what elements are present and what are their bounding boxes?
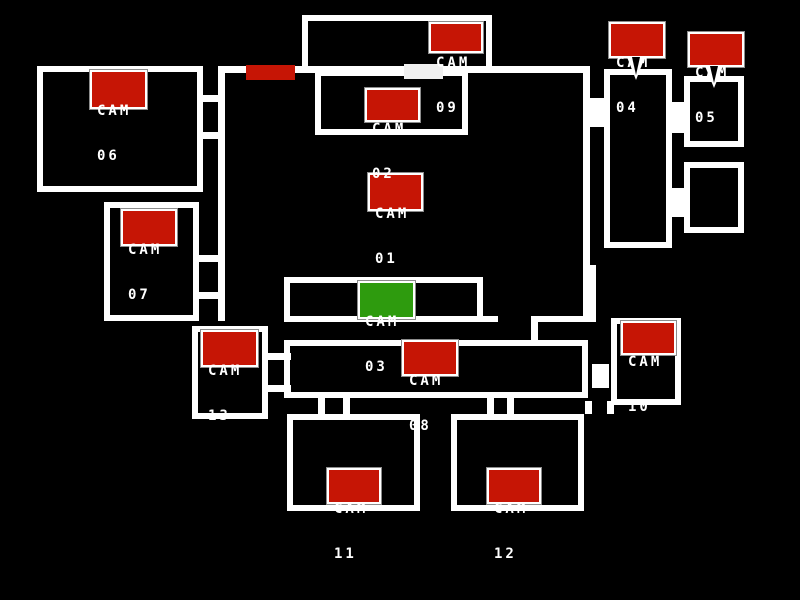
post-right-doorway-a <box>585 401 592 414</box>
cam-04-pointer-icon <box>626 57 646 82</box>
post-cam08-cam12-b <box>507 398 514 415</box>
cam-12-button[interactable]: CAM 12 <box>487 468 541 504</box>
cam-09-button[interactable]: CAM 09 <box>429 22 483 53</box>
post-cam08-cam12-a <box>487 398 494 415</box>
cam-08-label: CAM <box>409 374 456 389</box>
cam-04-number: 04 <box>616 101 663 116</box>
cam-13-button[interactable]: CAM 13 <box>201 330 258 367</box>
bridge-cam06-central-b <box>203 132 225 139</box>
cam-12-label: CAM <box>494 502 539 517</box>
cam-07-label: CAM <box>128 243 175 258</box>
cam-10-label: CAM <box>628 355 674 370</box>
cam-08-button[interactable]: CAM 08 <box>402 340 458 376</box>
cam-11-number: 11 <box>334 547 379 562</box>
connector-corridor-lower <box>672 188 685 217</box>
cam-07-number: 07 <box>128 288 175 303</box>
room-right-lower <box>684 162 744 233</box>
connector-cam08-cam10 <box>592 364 609 388</box>
cam-10-number: 10 <box>628 400 674 415</box>
cam-11-label: CAM <box>334 502 379 517</box>
cam-12-number: 12 <box>494 547 539 562</box>
bridge-cam07-central-b <box>198 292 219 299</box>
bridge-cam13-cam08-b <box>268 385 291 392</box>
cam-13-label: CAM <box>208 364 256 379</box>
cam-10-button[interactable]: CAM 10 <box>621 321 676 355</box>
cam-11-button[interactable]: CAM 11 <box>327 468 381 504</box>
bridge-cam07-central-a <box>198 255 219 262</box>
connector-central-corridor <box>587 98 605 127</box>
central-wall-right-stub <box>590 265 596 322</box>
cam-02-number: 02 <box>372 167 418 182</box>
cam-04-button[interactable]: CAM 04 <box>609 22 665 58</box>
post-cam08-cam11-b <box>343 398 350 415</box>
cam-03-label: CAM <box>365 315 413 330</box>
cam-05-button[interactable]: CAM 05 <box>688 32 744 67</box>
cam-06-label: CAM <box>97 104 145 119</box>
post-cam08-cam11-a <box>318 398 325 415</box>
cam-05-number: 05 <box>695 111 742 126</box>
cam-13-number: 13 <box>208 409 256 424</box>
cam-01-number: 01 <box>375 252 421 267</box>
cam-05-pointer-icon <box>704 66 724 90</box>
camera-map: CAM 01 CAM 02 CAM 03 CAM 04 CAM 05 CAM 0… <box>0 0 800 600</box>
door-indicator-red <box>246 65 295 80</box>
central-wall-left <box>218 66 225 321</box>
connector-corridor-cam05 <box>672 102 685 133</box>
cam-09-number: 09 <box>436 101 481 116</box>
central-doorway-post <box>531 316 538 346</box>
cam-06-button[interactable]: CAM 06 <box>90 70 147 109</box>
cam-06-number: 06 <box>97 149 145 164</box>
cam-02-button[interactable]: CAM 02 <box>365 88 420 122</box>
bridge-cam13-cam08-a <box>268 353 291 360</box>
bridge-cam06-central-a <box>203 95 225 102</box>
cam-03-button[interactable]: CAM 03 <box>358 281 415 319</box>
central-wall-bottom-right <box>532 316 590 322</box>
cam-07-button[interactable]: CAM 07 <box>121 209 177 246</box>
cam-08-number: 08 <box>409 419 456 434</box>
cam-02-label: CAM <box>372 122 418 137</box>
cam-09-label: CAM <box>436 56 481 71</box>
post-right-doorway-b <box>607 401 614 414</box>
